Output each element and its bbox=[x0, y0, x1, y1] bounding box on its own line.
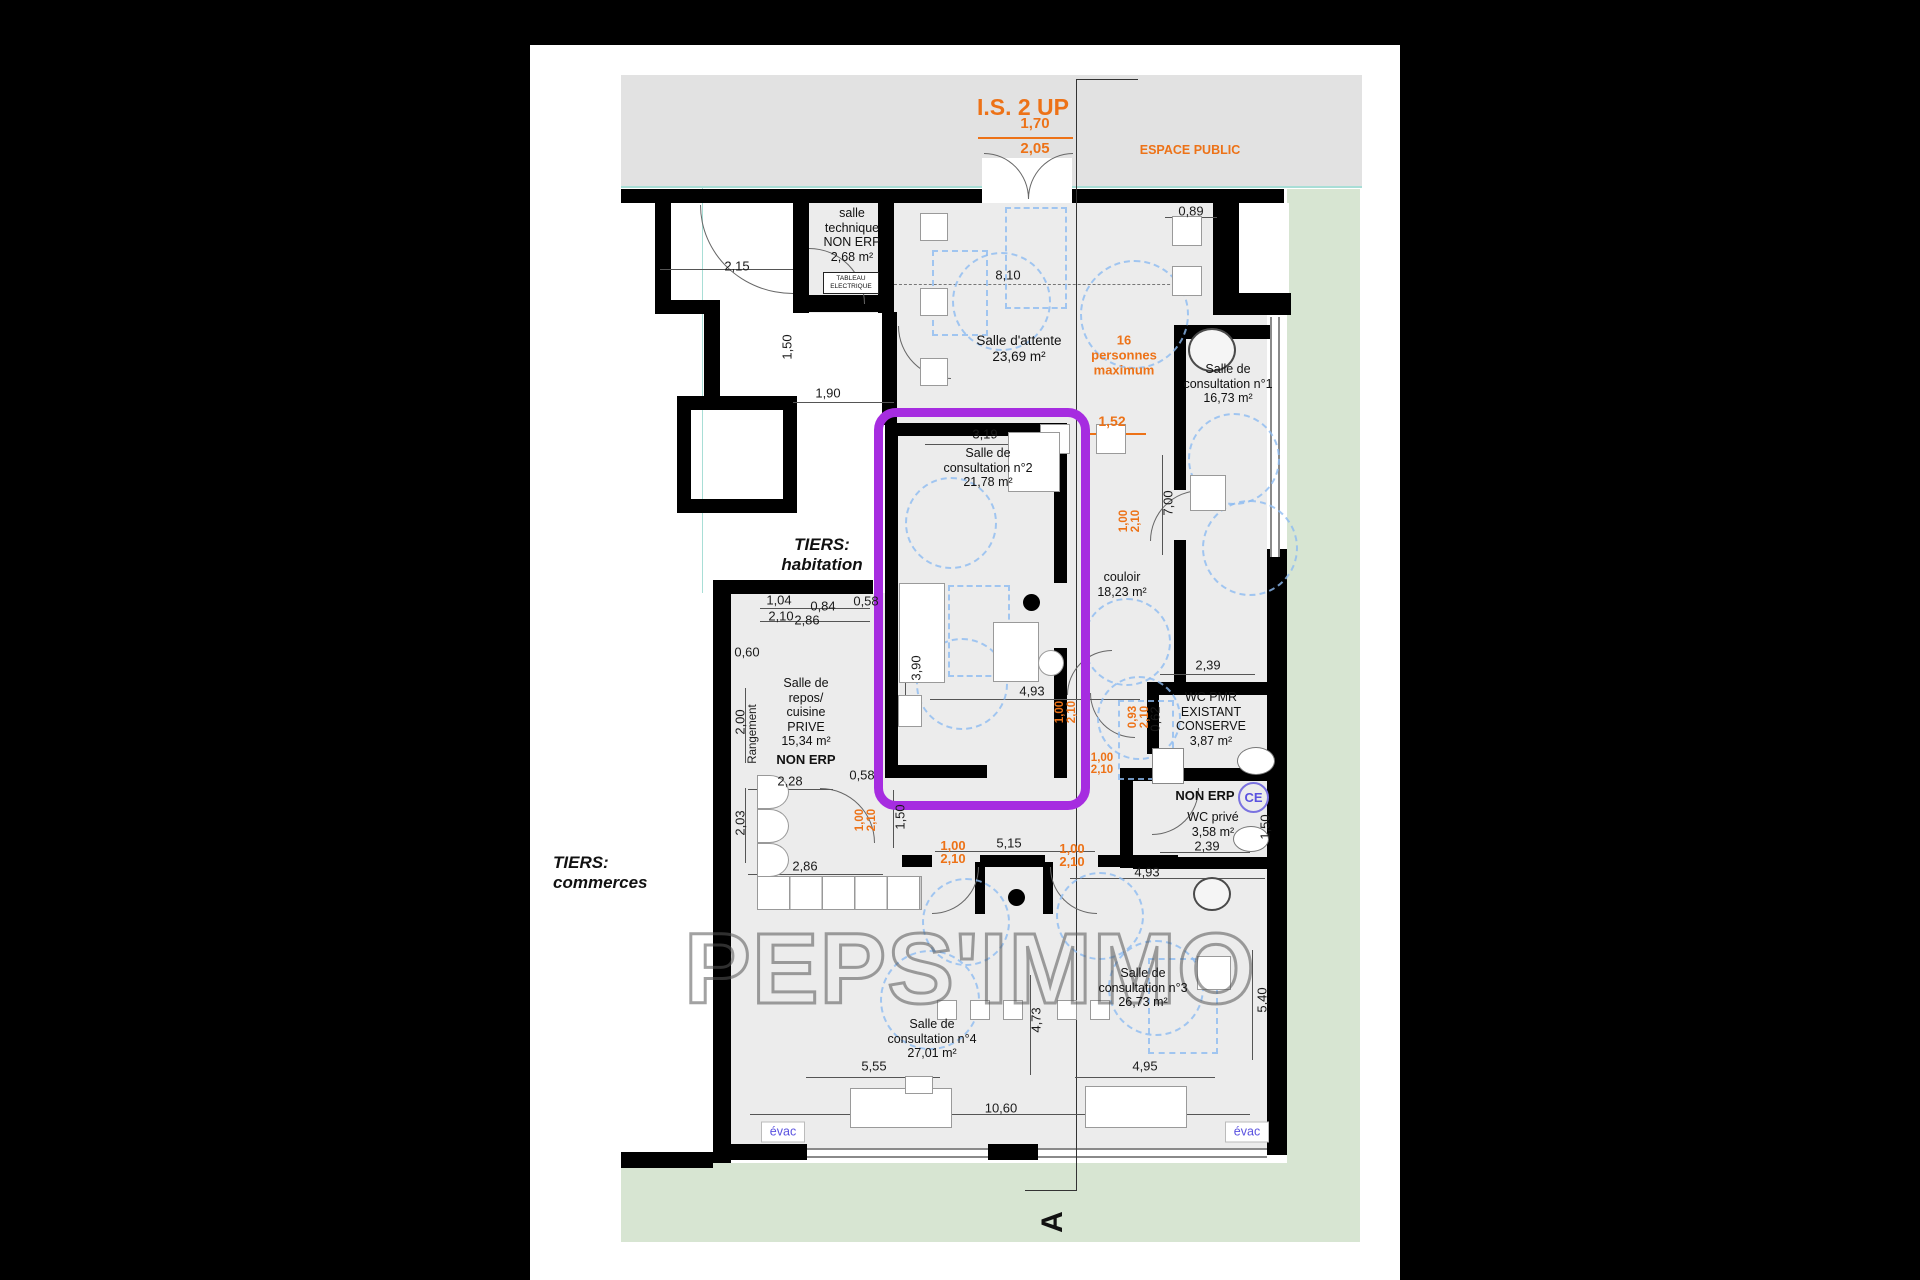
zone-label-tiers-commerces: TIERS: commerces bbox=[553, 853, 703, 893]
sink bbox=[1152, 748, 1184, 784]
clearance-circle bbox=[1083, 598, 1171, 686]
cabinet bbox=[1190, 475, 1226, 511]
dim: 0,89 bbox=[1178, 204, 1203, 219]
dim: 4,93 bbox=[1134, 865, 1159, 880]
tableau-electrique-box: TABLEAU ELECTRIQUE bbox=[823, 272, 879, 294]
wall bbox=[1213, 293, 1291, 315]
dim: 5,40 bbox=[1255, 987, 1270, 1012]
dim: 1,04 bbox=[766, 593, 791, 608]
dim: 5,15 bbox=[996, 836, 1021, 851]
guide-line bbox=[702, 188, 703, 593]
wall bbox=[655, 202, 671, 312]
wall bbox=[980, 855, 1045, 867]
room-label-couloir: couloir 18,23 m² bbox=[1062, 570, 1182, 599]
wall bbox=[1120, 768, 1133, 868]
dim: 0,60 bbox=[734, 645, 759, 660]
chair bbox=[920, 213, 948, 241]
clearance-rect bbox=[1005, 207, 1067, 309]
dim-orange-door: 1,00 2,10 bbox=[1059, 842, 1084, 868]
dim-line bbox=[1160, 674, 1255, 675]
dim: 3,90 bbox=[909, 655, 924, 680]
dim: 1,50 bbox=[893, 804, 908, 829]
wall bbox=[677, 396, 797, 410]
wall bbox=[1174, 540, 1186, 682]
dim: 1,90 bbox=[815, 386, 840, 401]
dim: 1,50 bbox=[1258, 814, 1273, 839]
dim: 2,00 bbox=[733, 709, 748, 734]
dim: 2,39 bbox=[1194, 839, 1219, 854]
public-space-label: ESPACE PUBLIC bbox=[1140, 144, 1240, 156]
dim: 0,58 bbox=[849, 768, 874, 783]
dim-orange: 1,52 bbox=[1098, 415, 1125, 427]
zone-label-tiers-habitation: TIERS: habitation bbox=[752, 535, 892, 575]
dim: 0,58 bbox=[853, 594, 878, 609]
chair bbox=[920, 288, 948, 316]
hall-before-consult2 bbox=[809, 313, 882, 423]
dim-orange-door: 1,00 2,10 bbox=[940, 839, 965, 865]
wall bbox=[1072, 189, 1284, 203]
room-label-consult2: Salle de consultation n°2 21,78 m² bbox=[913, 446, 1063, 490]
ce-badge: CE bbox=[1238, 782, 1269, 813]
dim-orange-door: 1,00 2,10 bbox=[1118, 510, 1142, 532]
room-label-consult4: Salle de consultation n°4 27,01 m² bbox=[857, 1017, 1007, 1061]
chair bbox=[1172, 216, 1202, 246]
wall-pier bbox=[988, 1144, 1038, 1160]
section-marker-a: A bbox=[1036, 1211, 1070, 1233]
section-line-foot bbox=[1076, 79, 1138, 80]
room-label-consult3: Salle de consultation n°3 26,73 m² bbox=[1068, 966, 1218, 1010]
room-label-consult1: Salle de consultation n°1 16,73 m² bbox=[1153, 362, 1303, 406]
clearance-circle bbox=[1202, 500, 1298, 596]
dim-orange: 2,05 bbox=[1020, 143, 1049, 155]
dim-line bbox=[978, 137, 1073, 139]
dim-line bbox=[1075, 1077, 1215, 1078]
dim: 7,00 bbox=[1161, 490, 1176, 515]
dim: 1,50 bbox=[780, 334, 795, 359]
occupancy-note: 16 personnes maximum bbox=[1091, 333, 1157, 378]
wall bbox=[677, 396, 691, 513]
cabinet bbox=[905, 1076, 933, 1094]
plan-marker-dot bbox=[1008, 889, 1025, 906]
toilet-pmr bbox=[1237, 747, 1275, 775]
room-label-rangement: Rangement bbox=[747, 704, 759, 763]
exam-bed bbox=[850, 1088, 952, 1128]
room-label-technique: salle technique NON ERP 2,68 m² bbox=[787, 206, 917, 264]
wall bbox=[704, 300, 720, 400]
dim-orange-door: 1,00 2,10 bbox=[1054, 701, 1078, 723]
wall bbox=[621, 1152, 713, 1168]
dim: 2,10 bbox=[768, 609, 793, 624]
dim-orange-door: 1,00 2,10 bbox=[1091, 752, 1113, 776]
exit-label: I.S. 2 UP bbox=[977, 101, 1069, 113]
room-label-repos-non-erp: NON ERP bbox=[751, 753, 861, 768]
room-label-repos: Salle de repos/ cuisine PRIVE 15,34 m² bbox=[751, 676, 861, 749]
dim: 10,60 bbox=[985, 1101, 1018, 1116]
dim-orange-door: 1,00 2,10 bbox=[854, 809, 878, 831]
dim: 4,73 bbox=[1029, 1007, 1044, 1032]
evac-label-left: évac bbox=[761, 1122, 805, 1143]
dim: 5,55 bbox=[861, 1059, 886, 1074]
dim: 2,03 bbox=[733, 810, 748, 835]
wall bbox=[783, 396, 797, 513]
kitchen-counter bbox=[757, 876, 922, 910]
dim-line bbox=[793, 402, 894, 403]
dim: 2,15 bbox=[724, 259, 749, 274]
dim-orange: 1,70 bbox=[1020, 118, 1049, 130]
wall bbox=[902, 855, 932, 867]
dim: 2,86 bbox=[794, 613, 819, 628]
chair bbox=[1172, 266, 1202, 296]
wall bbox=[713, 580, 873, 594]
evac-label-right: évac bbox=[1225, 1122, 1269, 1143]
dim: 3,19 bbox=[972, 427, 997, 442]
exam-bed bbox=[1085, 1086, 1187, 1128]
garden-bottom bbox=[621, 1163, 1360, 1242]
dim: 2,39 bbox=[1195, 658, 1220, 673]
dim: 0,84 bbox=[810, 599, 835, 614]
sink-unit bbox=[1193, 877, 1231, 911]
wall bbox=[1267, 549, 1287, 1155]
section-line-mark bbox=[1025, 1190, 1077, 1191]
dim-orange-door: 0,93 2,10 bbox=[1127, 706, 1151, 728]
room-label-wc-prive: WC privé 3,58 m² bbox=[1163, 810, 1263, 839]
garden-right bbox=[1287, 189, 1360, 1242]
dim: 2,28 bbox=[777, 774, 802, 789]
dim: 4,93 bbox=[1019, 684, 1044, 699]
room-label-attente: Salle d'attente 23,69 m² bbox=[944, 333, 1094, 365]
dim: 2,86 bbox=[792, 859, 817, 874]
section-line-mark bbox=[1076, 1180, 1077, 1191]
room-label-wc-pmr: WC PMR EXISTANT CONSERVE 3,87 m² bbox=[1151, 690, 1271, 748]
wall bbox=[677, 499, 797, 513]
floor-plan-screenshot: PEPS'IMMO I.S. 2 UP 1,70 2,05 ESPACE PUB… bbox=[0, 0, 1920, 1280]
alcove-niche bbox=[1239, 203, 1289, 295]
wall-pier bbox=[731, 1144, 807, 1160]
dim: 4,95 bbox=[1132, 1059, 1157, 1074]
dim: 8,10 bbox=[995, 268, 1020, 283]
wall bbox=[713, 593, 731, 1163]
